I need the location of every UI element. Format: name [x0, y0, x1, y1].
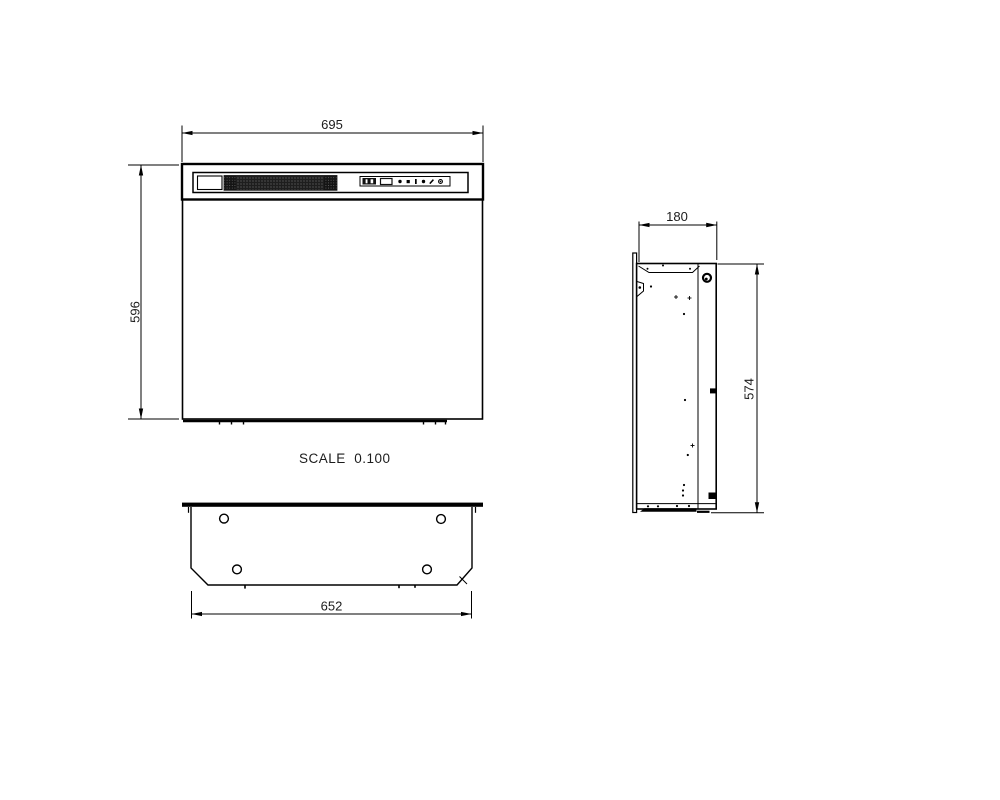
top-screw-head [703, 274, 711, 282]
mounting-holes [220, 514, 446, 574]
side-body-outline [637, 264, 717, 510]
front-width-dimension-label: 695 [321, 117, 343, 132]
side-depth-dimension-label: 180 [666, 209, 688, 224]
control-panel [360, 177, 450, 187]
front-height-dimension-label: 596 [128, 301, 143, 323]
rocker-button-icon [381, 179, 393, 185]
bottom-front-flange-bar [182, 503, 483, 507]
drawing-canvas: 695 596 [0, 0, 1000, 800]
air-grille [224, 176, 337, 191]
bottom-width-dimension-label: 652 [321, 599, 343, 614]
technical-drawing: 695 596 [0, 0, 1000, 800]
bottom-view: 652 [182, 503, 483, 619]
left-blank-plate [198, 176, 223, 190]
digit-display-icon [363, 178, 377, 185]
front-view: 695 596 [128, 117, 484, 425]
front-bottom-flange [183, 421, 447, 425]
side-view: 180 574 [633, 209, 764, 513]
side-height-dimension-label: 574 [742, 378, 757, 400]
scale-note: SCALE 0.100 [299, 451, 391, 466]
flange-end-tabs [189, 507, 476, 513]
front-body-outline [183, 165, 483, 420]
